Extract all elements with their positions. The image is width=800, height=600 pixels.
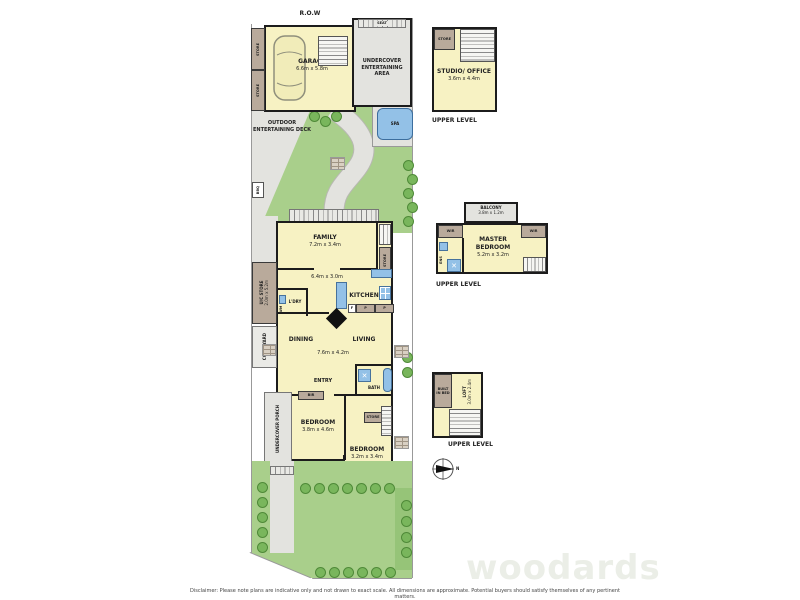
bir-robe: BIR xyxy=(298,391,324,400)
kitchen-bench xyxy=(371,269,392,278)
master-name: MASTER BEDROOM xyxy=(468,236,518,252)
bbq: BBQ xyxy=(252,182,264,198)
shrub xyxy=(300,483,311,494)
studio-stairs-icon xyxy=(460,29,495,62)
master-label: MASTER BEDROOM 5.2m x 3.2m xyxy=(468,236,518,258)
shrub xyxy=(329,567,340,578)
spa-label: SPA xyxy=(391,121,400,126)
shrub xyxy=(257,497,268,508)
living-dims: 7.6m x 4.2m xyxy=(311,350,355,357)
shrub xyxy=(407,202,418,213)
hall-store-label: STORE xyxy=(367,415,380,420)
wir-left-label: WIR xyxy=(447,229,455,234)
brick-paving-courtyard xyxy=(262,344,276,356)
shrub xyxy=(320,116,331,127)
shrub xyxy=(342,483,353,494)
disclaimer: Disclaimer: Please note plans are indica… xyxy=(190,588,620,600)
ensuite-shower-icon: ✕ xyxy=(447,259,461,272)
hall-stairs-icon xyxy=(381,406,392,436)
pantry-left: P xyxy=(356,304,375,313)
family-label: FAMILY 7.2m x 3.4m xyxy=(295,234,355,248)
brick-paving-side1 xyxy=(394,345,409,358)
shrub xyxy=(357,567,368,578)
brick-paving-path xyxy=(330,157,345,170)
bir-label: BIR xyxy=(308,393,315,398)
studio-level-label: UPPER LEVEL xyxy=(432,117,492,125)
dining-label: DINING xyxy=(283,336,319,344)
bedroom2-label: BEDROOM 3.2m x 3.4m xyxy=(345,446,389,460)
wall xyxy=(355,364,357,395)
wir-left: WIR xyxy=(438,225,463,238)
kitchen-label: KITCHEN xyxy=(344,292,384,300)
shrub xyxy=(371,567,382,578)
studio-dims: 3.6m x 4.4m xyxy=(436,76,492,83)
studio-label: STUDIO/ OFFICE 3.6m x 4.4m xyxy=(436,68,492,82)
loft-name: LOFT xyxy=(462,386,467,397)
ensuite-vanity-icon xyxy=(439,242,448,251)
wall xyxy=(277,312,329,314)
hall-store: STORE xyxy=(364,412,382,423)
studio-store: STORE xyxy=(434,29,455,50)
shower-icon: ✕ xyxy=(358,369,371,382)
compass-north-label: N xyxy=(456,466,459,471)
entry-label: ENTRY xyxy=(306,378,340,385)
loft-dims: 3.0m x 2.4m xyxy=(467,379,472,404)
garage-dims: 6.6m x 5.8m xyxy=(282,66,342,73)
brick-paving-side2 xyxy=(394,436,409,449)
uc-store: U/C STORE 2.0m x 5.2m xyxy=(252,262,277,324)
master-level-label: UPPER LEVEL xyxy=(436,281,496,289)
shrub xyxy=(257,482,268,493)
seat: SEAT xyxy=(358,19,406,28)
ensuite-label: ENS xyxy=(439,252,444,268)
family-name: FAMILY xyxy=(295,234,355,242)
wall xyxy=(277,288,307,290)
rear-store-upper: STORE xyxy=(251,28,265,70)
rear-store-upper-label: STORE xyxy=(256,43,261,56)
shrub xyxy=(315,567,326,578)
shrub xyxy=(370,483,381,494)
shrub xyxy=(257,527,268,538)
bedroom2-name: BEDROOM xyxy=(345,446,389,454)
built-in-bed-label: BUILT IN BED xyxy=(435,387,451,395)
wall xyxy=(277,268,314,270)
wir-right-label: WIR xyxy=(530,229,538,234)
wall xyxy=(355,364,392,366)
pantry-right-label: P xyxy=(383,306,386,311)
master-dims: 5.2m x 3.2m xyxy=(468,252,518,259)
family-dims: 7.2m x 3.4m xyxy=(295,242,355,249)
studio-name: STUDIO/ OFFICE xyxy=(436,68,492,76)
pantry-right: P xyxy=(375,304,394,313)
wm-label: WM xyxy=(279,305,284,313)
shrub xyxy=(403,216,414,227)
shrub xyxy=(309,111,320,122)
fridge-label: F xyxy=(351,306,353,311)
wall xyxy=(334,394,392,396)
built-in-bed: BUILT IN BED xyxy=(434,374,452,408)
wall xyxy=(462,238,464,272)
bedroom1-dims: 3.8m x 4.6m xyxy=(294,427,342,434)
rear-store-lower-label: STORE xyxy=(256,84,261,97)
shrub xyxy=(401,516,412,527)
family-stairs-icon xyxy=(379,224,391,245)
shrub xyxy=(401,532,412,543)
spa: SPA xyxy=(377,108,413,140)
shrub xyxy=(403,188,414,199)
bedroom2-dims: 3.2m x 3.4m xyxy=(345,454,389,461)
garage-stairs-icon xyxy=(318,36,348,66)
shrub xyxy=(402,367,413,378)
loft-stairs-icon xyxy=(449,409,481,436)
bedroom1-label: BEDROOM 3.8m x 4.6m xyxy=(294,419,342,433)
outdoor-deck-label: OUTDOOR ENTERTAINING DECK xyxy=(253,120,311,133)
meals-dims: 6.4m x 3.0m xyxy=(305,274,349,281)
master-stairs-icon xyxy=(523,257,546,272)
shrub xyxy=(314,483,325,494)
shrub xyxy=(401,547,412,558)
porch-label: UNDERCOVER PORCH xyxy=(275,405,280,453)
shrub xyxy=(403,160,414,171)
loft-label: LOFT 3.0m x 2.4m xyxy=(454,374,480,410)
pantry-left-label: P xyxy=(364,306,367,311)
shrub xyxy=(331,111,342,122)
shrub xyxy=(328,483,339,494)
floorplan-page: woodards R.O.W OUTDOOR ENTERTAINING DECK… xyxy=(0,0,800,600)
shrub xyxy=(407,174,418,185)
shrub xyxy=(343,567,354,578)
balcony-dims: 3.8m x 1.2m xyxy=(466,210,516,215)
wall xyxy=(376,222,378,270)
shrub xyxy=(257,542,268,553)
shrub xyxy=(384,483,395,494)
seat-label: SEAT xyxy=(375,21,389,26)
loft-label-text: LOFT 3.0m x 2.4m xyxy=(462,379,472,404)
studio-store-label: STORE xyxy=(438,37,451,42)
shrub xyxy=(257,512,268,523)
bedroom1-name: BEDROOM xyxy=(294,419,342,427)
bath-label: BATH xyxy=(363,385,385,390)
shrub xyxy=(356,483,367,494)
bbq-label: BBQ xyxy=(256,186,261,194)
porch-steps xyxy=(270,466,294,475)
shrub xyxy=(401,500,412,511)
uc-store-dims: 2.0m x 5.2m xyxy=(265,280,270,305)
undercover-porch: UNDERCOVER PORCH xyxy=(264,392,292,466)
balcony-label: BALCONY 3.8m x 1.2m xyxy=(466,205,516,215)
laundry-label: L'DRY xyxy=(284,299,306,304)
shrub xyxy=(385,567,396,578)
family-store-label: STORE xyxy=(383,254,388,267)
loft-level-label: UPPER LEVEL xyxy=(448,441,508,449)
rear-store-lower: STORE xyxy=(251,70,265,111)
living-label: LIVING xyxy=(346,336,382,344)
uc-store-label: U/C STORE 2.0m x 5.2m xyxy=(259,280,269,305)
entertaining-area-label: UNDERCOVER ENTERTAINING AREA xyxy=(355,58,409,78)
fridge: F xyxy=(348,304,356,313)
wir-right: WIR xyxy=(521,225,546,238)
